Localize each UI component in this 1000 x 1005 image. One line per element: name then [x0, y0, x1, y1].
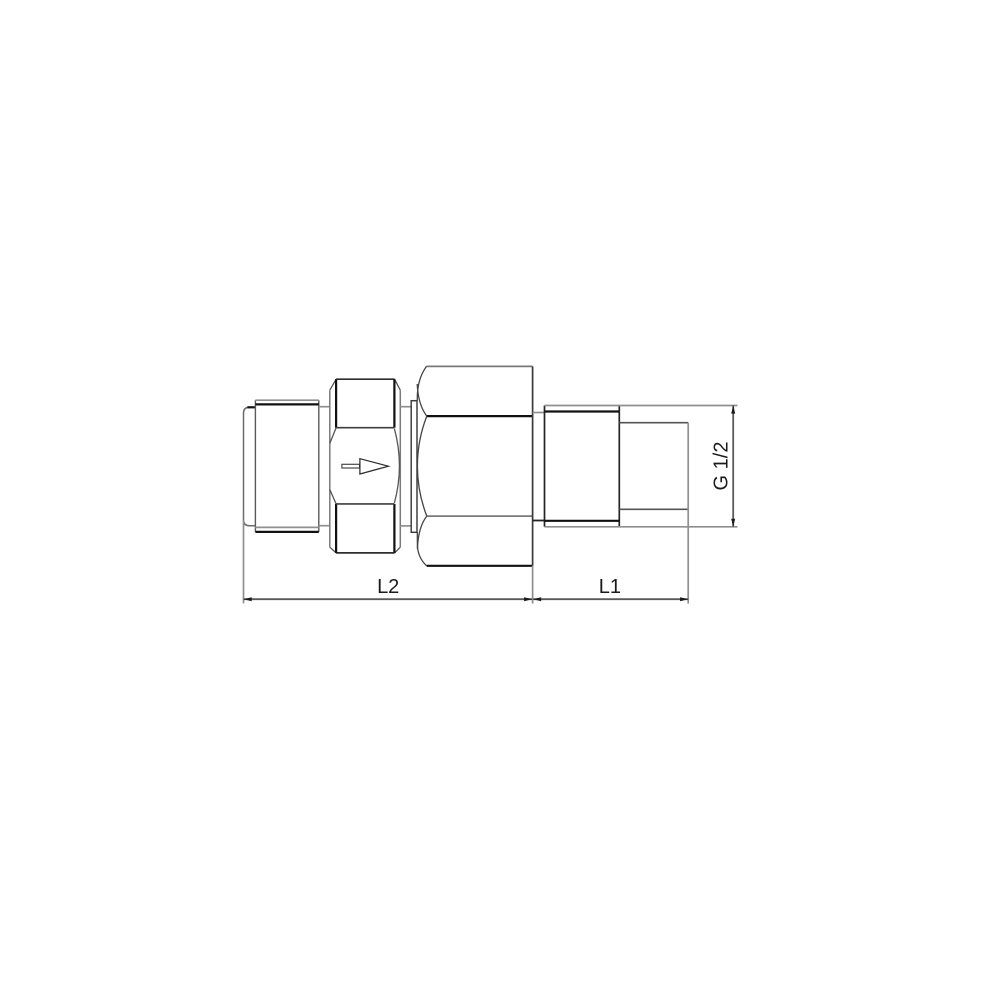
svg-text:G 1/2: G 1/2 [710, 442, 732, 491]
svg-text:L2: L2 [377, 576, 399, 598]
svg-text:L1: L1 [599, 576, 621, 598]
